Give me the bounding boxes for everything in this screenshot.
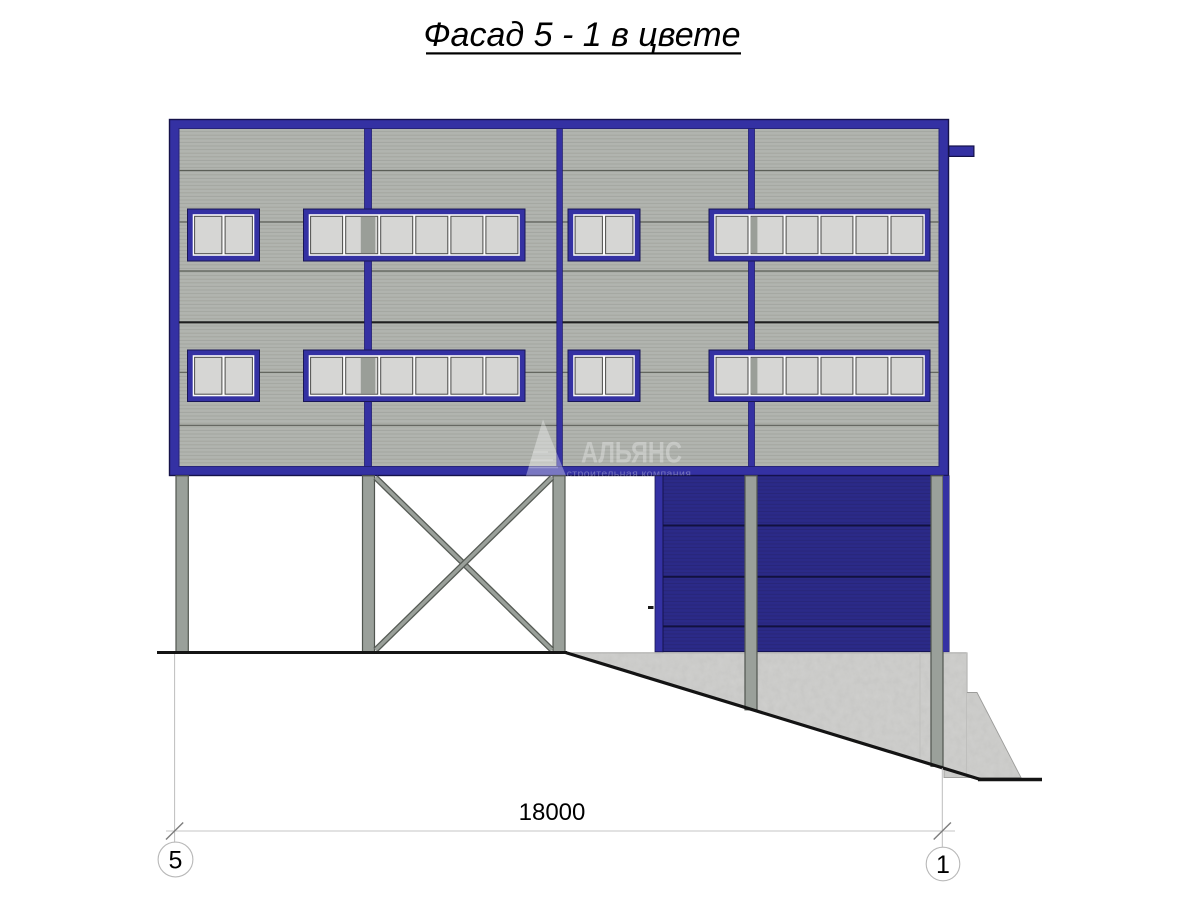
svg-text:1: 1 — [936, 851, 950, 879]
svg-text:АЛЬЯНС: АЛЬЯНС — [581, 436, 682, 469]
svg-text:5: 5 — [169, 847, 183, 875]
svg-text:Фасад 5 - 1 в цвете: Фасад 5 - 1 в цвете — [424, 16, 741, 54]
svg-text:18000: 18000 — [519, 799, 586, 826]
